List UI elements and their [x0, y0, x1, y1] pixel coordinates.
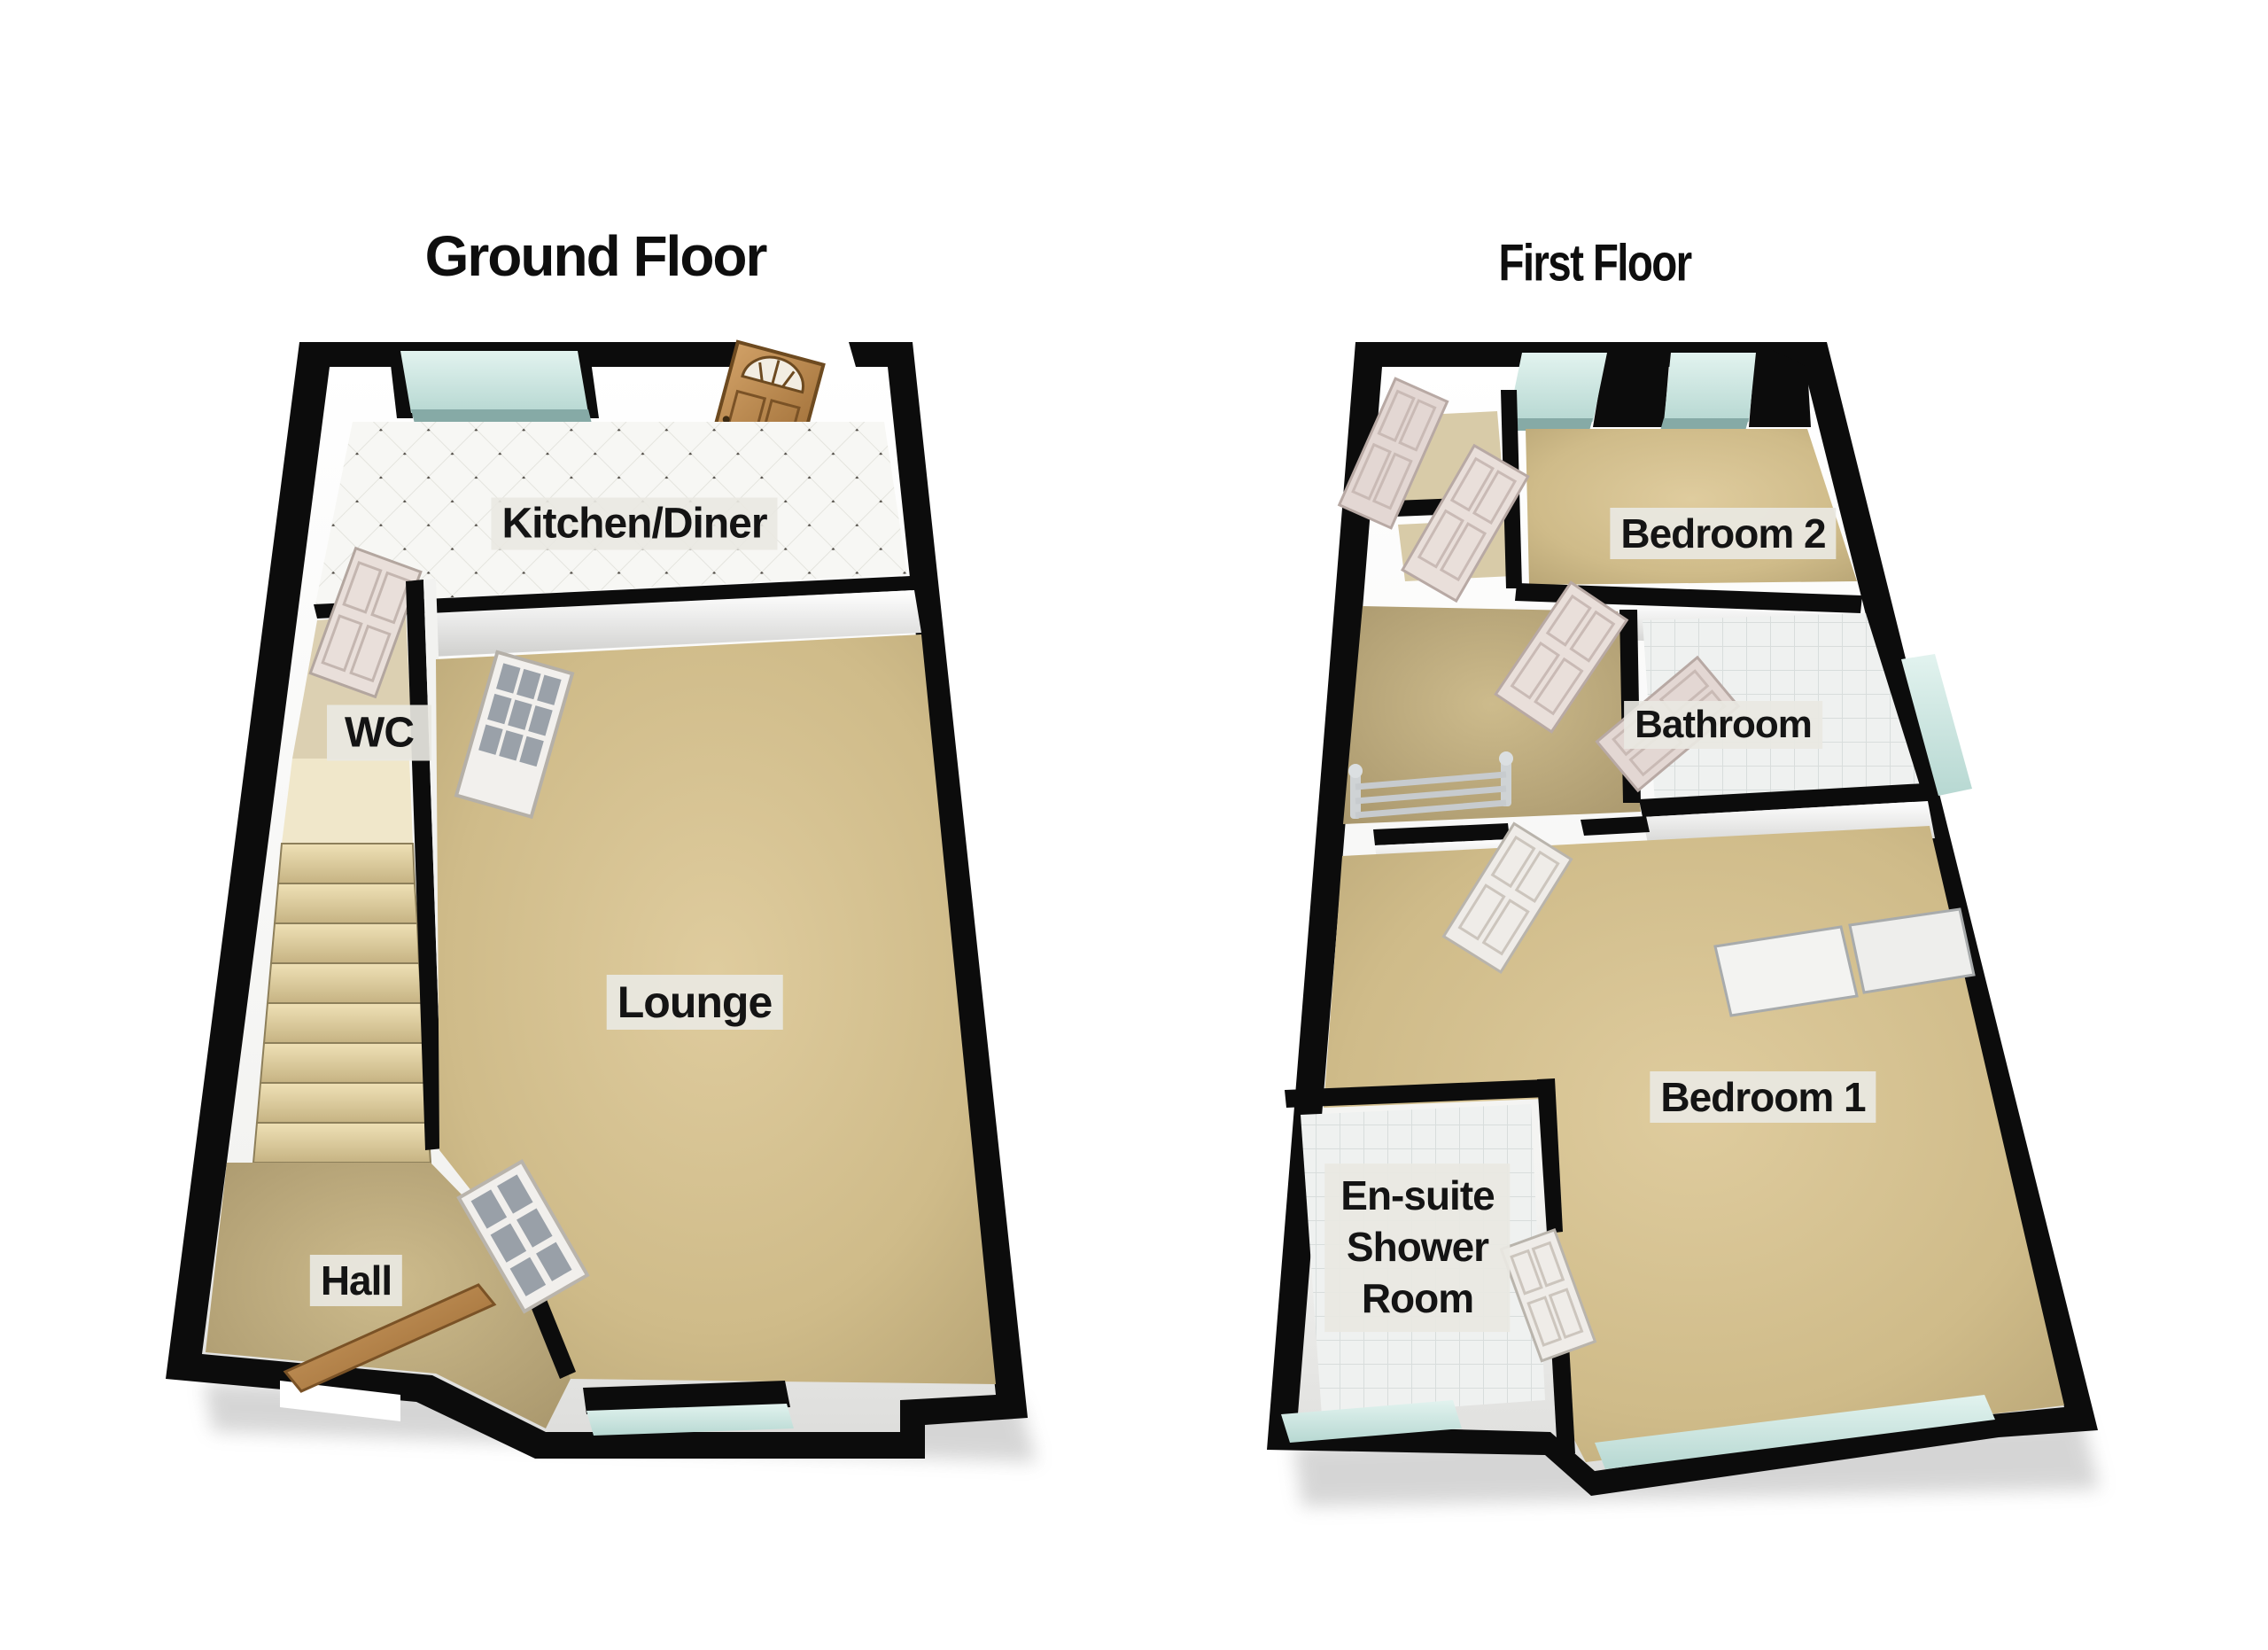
room-label-bedroom-1: Bedroom 1 [1650, 1071, 1876, 1123]
first-floor-title: First Floor [1498, 234, 1690, 293]
lounge-window-icon [583, 1381, 794, 1436]
floorplan-figure: Ground Floor First Floor Kitchen/Diner W… [0, 0, 2268, 1650]
kitchen-window-icon [388, 342, 599, 424]
floorplans-svg [0, 0, 2268, 1650]
bedroom2-floor [1526, 429, 1857, 585]
room-label-kitchen-diner: Kitchen/Diner [491, 498, 777, 550]
room-label-bedroom-2: Bedroom 2 [1610, 508, 1836, 559]
ensuite-label-line-2: Shower [1340, 1222, 1494, 1273]
room-label-bathroom: Bathroom [1624, 701, 1822, 749]
front-windows-icon [1504, 342, 1811, 431]
room-label-hall: Hall [310, 1255, 402, 1306]
room-label-en-suite-shower-room: En-suite Shower Room [1324, 1164, 1510, 1332]
ensuite-label-line-3: Room [1340, 1273, 1494, 1325]
ensuite-label-line-1: En-suite [1340, 1171, 1494, 1222]
ground-floor-title: Ground Floor [425, 223, 766, 289]
room-label-wc: WC [327, 705, 431, 761]
room-label-lounge: Lounge [607, 975, 783, 1030]
